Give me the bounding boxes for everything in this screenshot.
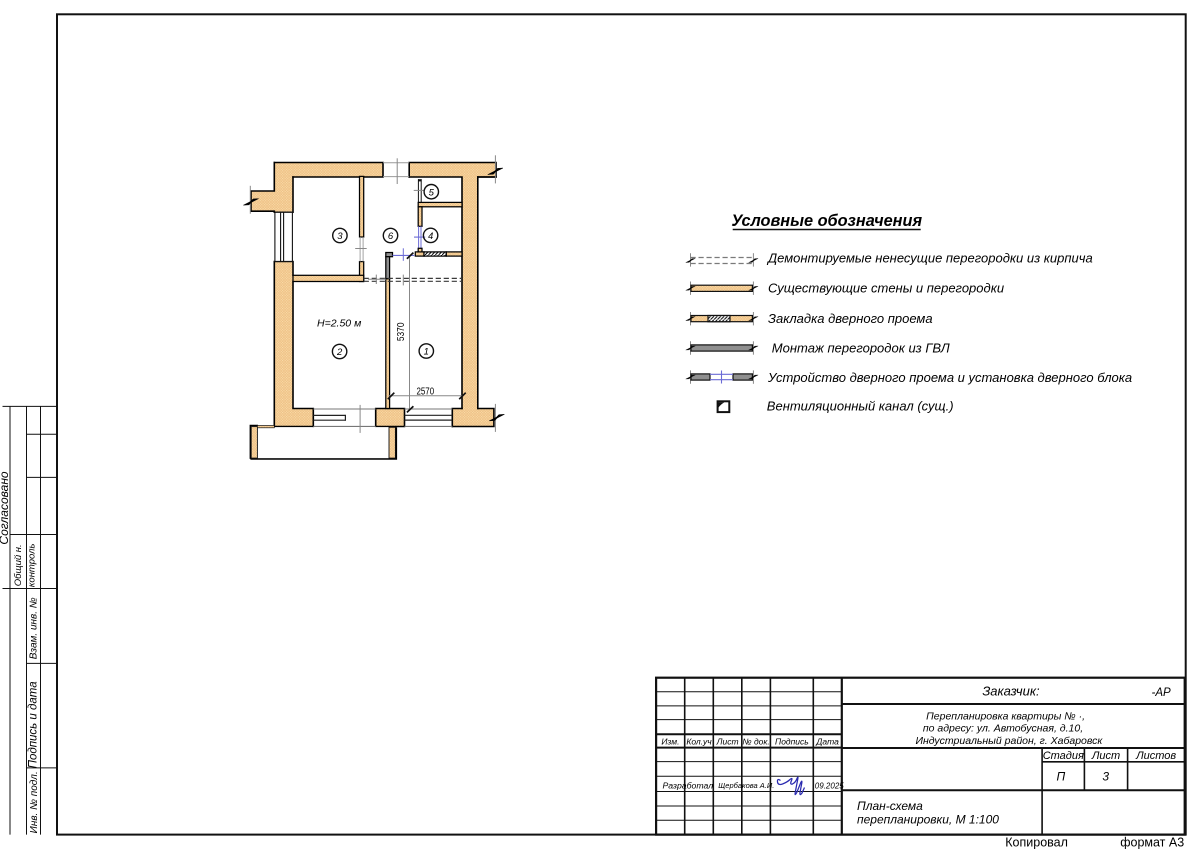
svg-text:-АР: -АР <box>1152 687 1172 699</box>
svg-text:Закладка дверного проема: Закладка дверного проема <box>768 311 933 326</box>
svg-text:Листов: Листов <box>1135 750 1176 762</box>
svg-text:№ док.: № док. <box>742 736 769 746</box>
svg-text:формат А3: формат А3 <box>1120 836 1184 849</box>
svg-text:2570: 2570 <box>417 387 435 398</box>
svg-text:Подпись: Подпись <box>775 736 809 746</box>
svg-text:09.2025: 09.2025 <box>815 782 844 791</box>
svg-text:Условные обозначения: Условные обозначения <box>731 212 922 230</box>
svg-text:Инв. № подл.: Инв. № подл. <box>29 771 40 833</box>
svg-text:Вентиляционный канал (сущ.): Вентиляционный канал (сущ.) <box>767 399 954 414</box>
svg-text:Копировал: Копировал <box>1005 836 1068 849</box>
svg-text:2: 2 <box>336 347 343 358</box>
svg-text:перепланировки, М 1:100: перепланировки, М 1:100 <box>857 813 999 827</box>
svg-text:Монтаж перегородок из ГВЛ: Монтаж перегородок из ГВЛ <box>772 341 950 356</box>
svg-text:по адресу: ул. Автобусная, д.1: по адресу: ул. Автобусная, д.10, <box>923 723 1083 735</box>
svg-text:Устройство дверного проема и у: Устройство дверного проема и установка д… <box>767 370 1132 385</box>
svg-text:Лист: Лист <box>1091 750 1120 762</box>
svg-text:3: 3 <box>337 231 343 242</box>
svg-text:Демонтируемые ненесущие перего: Демонтируемые ненесущие перегородки из к… <box>766 250 1093 265</box>
svg-text:Щербакова А.И.: Щербакова А.И. <box>718 781 774 790</box>
svg-text:контроль: контроль <box>26 544 37 588</box>
svg-text:Лист: Лист <box>716 736 739 746</box>
svg-text:1: 1 <box>424 347 429 358</box>
svg-text:Стадия: Стадия <box>1043 750 1084 762</box>
svg-text:Дата: Дата <box>815 736 839 746</box>
svg-text:Существующие стены и перегород: Существующие стены и перегородки <box>768 281 1004 296</box>
svg-text:Разработал: Разработал <box>663 781 714 791</box>
svg-text:Индустриальный район, г. Хабар: Индустриальный район, г. Хабаровск <box>915 735 1103 747</box>
svg-text:Взам. инв. №: Взам. инв. № <box>28 597 39 659</box>
svg-text:Кол.уч: Кол.уч <box>686 736 712 746</box>
svg-text:H=2.50 м: H=2.50 м <box>317 317 361 329</box>
svg-text:Подпись и дата: Подпись и дата <box>27 681 39 768</box>
svg-text:4: 4 <box>428 231 433 242</box>
svg-text:5370: 5370 <box>396 322 407 341</box>
svg-text:Заказчик:: Заказчик: <box>982 684 1040 699</box>
svg-text:Перепланировка квартиры № ·,: Перепланировка квартиры № ·, <box>926 710 1085 722</box>
svg-text:Общий н.: Общий н. <box>13 544 24 586</box>
svg-text:3: 3 <box>1102 770 1109 784</box>
svg-text:5: 5 <box>429 187 435 198</box>
svg-text:Изм.: Изм. <box>661 736 679 746</box>
svg-text:6: 6 <box>388 231 394 242</box>
svg-text:П: П <box>1056 770 1065 784</box>
svg-text:План-схема: План-схема <box>857 799 923 813</box>
svg-text:Согласовано: Согласовано <box>0 471 11 545</box>
